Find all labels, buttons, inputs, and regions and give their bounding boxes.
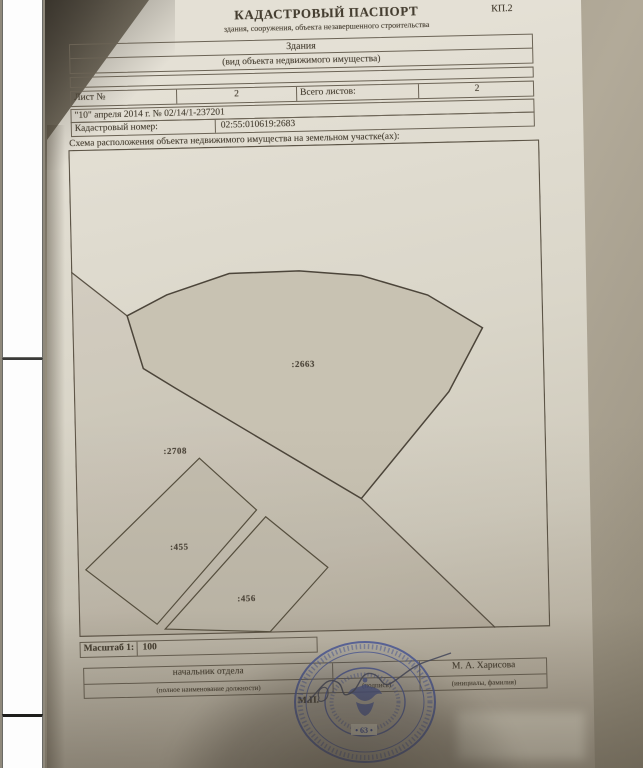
total-sheets-label: Всего листов: xyxy=(296,84,418,101)
adjacent-thumbnail-middle xyxy=(2,358,43,715)
adjacent-thumbnail-top xyxy=(2,0,43,358)
cadastral-number-label: Кадастровый номер: xyxy=(72,120,215,136)
form-code: КП.2 xyxy=(491,2,513,15)
bottom-vignette xyxy=(45,420,643,768)
adjacent-thumbnail-bottom xyxy=(2,714,43,768)
parcel-label-2663: :2663 xyxy=(281,358,325,369)
sheet-label: Лист № xyxy=(71,90,176,106)
document-photo: КАДАСТРОВЫЙ ПАСПОРТ здания, сооружения, … xyxy=(45,0,643,768)
total-sheets-number: 2 xyxy=(418,82,535,99)
photo-of-cadastral-passport: КАДАСТРОВЫЙ ПАСПОРТ здания, сооружения, … xyxy=(0,0,643,768)
sheet-number: 2 xyxy=(176,87,296,104)
